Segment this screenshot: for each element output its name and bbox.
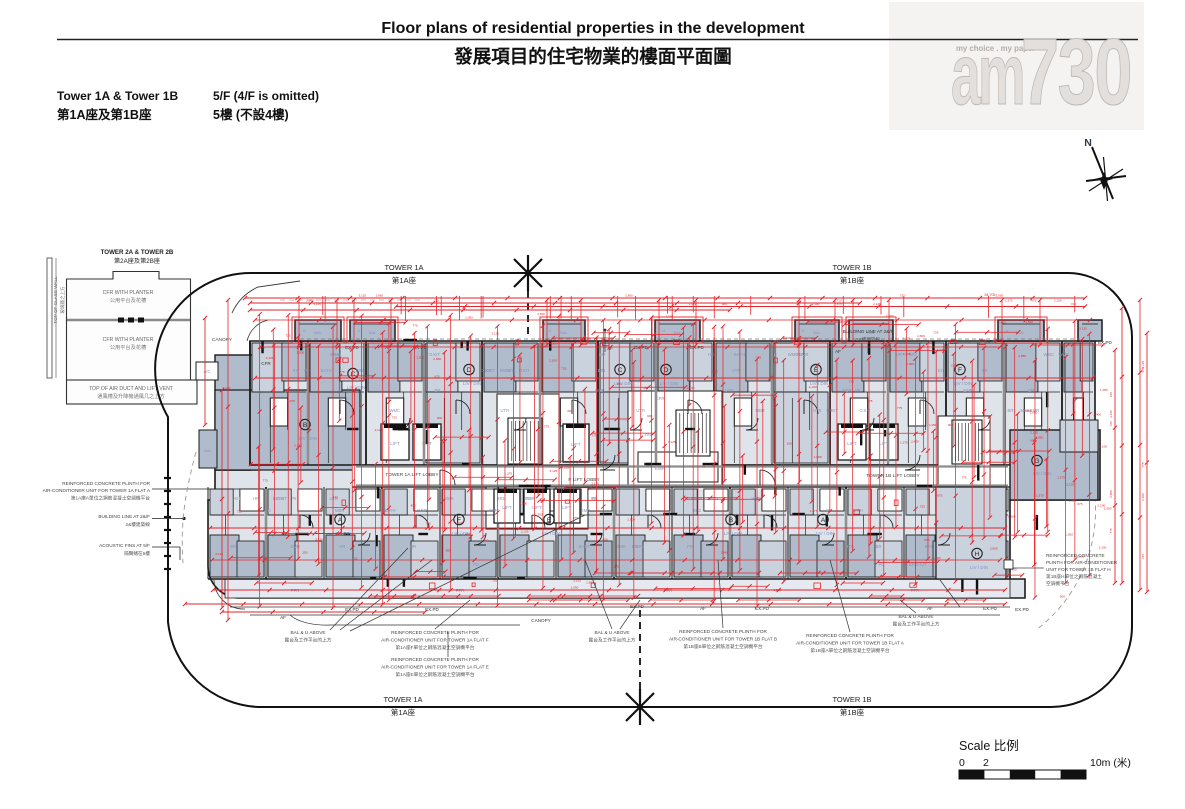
- svg-text:1,500: 1,500: [1025, 320, 1033, 324]
- svg-text:MBR: MBR: [842, 388, 851, 393]
- svg-text:BATH: BATH: [321, 368, 332, 373]
- svg-text:AF: AF: [986, 339, 992, 344]
- svg-text:第1A座E單位之鋼筋混凝土空調機平台: 第1A座E單位之鋼筋混凝土空調機平台: [395, 671, 474, 678]
- svg-text:675: 675: [837, 302, 842, 306]
- svg-text:725: 725: [920, 504, 925, 508]
- svg-text:PD: PD: [687, 544, 693, 549]
- svg-text:LIV / DIN: LIV / DIN: [347, 385, 365, 390]
- svg-text:TOWER 1B: TOWER 1B: [832, 695, 871, 704]
- svg-text:1,500: 1,500: [917, 334, 925, 338]
- svg-text:150: 150: [643, 386, 648, 390]
- svg-text:BATH: BATH: [579, 544, 590, 549]
- svg-text:BAL: BAL: [560, 330, 568, 335]
- svg-text:2,100: 2,100: [1054, 299, 1062, 303]
- svg-text:2,125: 2,125: [1030, 431, 1038, 435]
- svg-text:KIT: KIT: [234, 496, 241, 501]
- svg-text:2,100: 2,100: [549, 359, 557, 363]
- svg-text:O.KIT: O.KIT: [484, 368, 495, 373]
- svg-text:Scale 比例: Scale 比例: [959, 739, 1019, 753]
- svg-text:U: U: [357, 329, 360, 333]
- svg-text:BATH: BATH: [734, 352, 745, 357]
- svg-text:675: 675: [924, 538, 929, 542]
- svg-text:675: 675: [434, 374, 439, 378]
- svg-text:ACOUSTIC FINS AT 5/F: ACOUSTIC FINS AT 5/F: [99, 543, 150, 548]
- svg-text:1,500: 1,500: [627, 517, 635, 521]
- svg-text:3,125: 3,125: [668, 440, 676, 444]
- svg-text:3,125: 3,125: [1109, 410, 1113, 418]
- svg-text:BAL & U ABOVE: BAL & U ABOVE: [291, 630, 326, 635]
- svg-text:775: 775: [867, 399, 872, 403]
- svg-text:900: 900: [712, 370, 717, 374]
- svg-text:KIT: KIT: [831, 408, 838, 413]
- svg-text:第1A座: 第1A座: [392, 275, 417, 285]
- svg-text:2,100: 2,100: [687, 386, 695, 390]
- svg-text:900: 900: [722, 302, 727, 306]
- svg-text:LIV / DIN: LIV / DIN: [816, 531, 834, 536]
- svg-text:UNIT FOR TOWER 1B FLAT H: UNIT FOR TOWER 1B FLAT H: [1046, 567, 1111, 572]
- svg-text:1,500: 1,500: [481, 539, 489, 543]
- svg-text:1,050: 1,050: [1035, 435, 1043, 439]
- svg-text:3,125: 3,125: [573, 579, 581, 583]
- svg-text:2,660: 2,660: [625, 294, 633, 298]
- svg-text:KIT: KIT: [938, 368, 945, 373]
- svg-text:775: 775: [1141, 462, 1145, 467]
- svg-text:TOWER 2A & TOWER 2B: TOWER 2A & TOWER 2B: [101, 249, 174, 256]
- svg-text:2,660: 2,660: [376, 294, 384, 298]
- svg-text:2,125: 2,125: [1066, 483, 1074, 487]
- svg-text:LIV / DIN: LIV / DIN: [463, 381, 481, 386]
- svg-text:3,125: 3,125: [491, 332, 499, 336]
- svg-text:1,050: 1,050: [1030, 410, 1038, 414]
- svg-text:2,400: 2,400: [906, 362, 914, 366]
- svg-text:2,660: 2,660: [721, 550, 729, 554]
- svg-text:MBR: MBR: [335, 508, 344, 513]
- svg-text:725: 725: [392, 415, 397, 419]
- svg-text:REINFORCED CONCRETE PLINTH FOR: REINFORCED CONCRETE PLINTH FOR: [391, 630, 479, 635]
- svg-text:2,400: 2,400: [1093, 412, 1101, 416]
- svg-text:EMR: EMR: [581, 508, 590, 513]
- svg-text:1,050: 1,050: [689, 302, 697, 306]
- svg-text:LIFT: LIFT: [390, 441, 400, 446]
- svg-text:HR: HR: [708, 352, 714, 357]
- svg-text:露台及工作平台的上方: 露台及工作平台的上方: [285, 636, 332, 643]
- svg-text:BATH: BATH: [385, 508, 396, 513]
- svg-text:BUILDING LINE AT 2&/F: BUILDING LINE AT 2&/F: [98, 514, 150, 519]
- svg-text:1,500: 1,500: [296, 351, 304, 355]
- svg-text:UTR: UTR: [501, 408, 510, 413]
- svg-text:CANOPY: CANOPY: [531, 618, 550, 623]
- svg-text:EMR: EMR: [617, 544, 626, 549]
- svg-text:BR: BR: [230, 544, 236, 549]
- svg-text:725: 725: [561, 367, 566, 371]
- svg-text:900: 900: [948, 423, 953, 427]
- svg-text:1,050: 1,050: [1068, 499, 1076, 503]
- svg-text:2,125: 2,125: [873, 302, 881, 306]
- svg-text:775: 775: [413, 324, 418, 328]
- svg-text:725: 725: [900, 294, 905, 298]
- svg-text:2&樓建築線: 2&樓建築線: [126, 521, 151, 528]
- svg-text:3,125: 3,125: [266, 356, 274, 360]
- svg-text:900: 900: [460, 340, 465, 344]
- svg-text:REINFORCED CONCRETE PLINTH FOR: REINFORCED CONCRETE PLINTH FOR: [391, 657, 479, 662]
- svg-text:TOP OF GLASS WALL: TOP OF GLASS WALL: [53, 276, 58, 324]
- svg-text:U: U: [303, 329, 306, 333]
- svg-text:3,125: 3,125: [313, 302, 321, 306]
- svg-text:EX.PD: EX.PD: [1098, 340, 1112, 345]
- svg-text:LIFT: LIFT: [502, 505, 512, 510]
- svg-text:1,375: 1,375: [937, 348, 945, 352]
- svg-text:BAL: BAL: [674, 330, 682, 335]
- svg-text:LIFT: LIFT: [562, 505, 572, 510]
- svg-text:PFR: PFR: [911, 588, 920, 593]
- svg-text:775: 775: [291, 497, 296, 501]
- svg-text:1,500: 1,500: [1104, 506, 1112, 510]
- svg-text:EMR: EMR: [444, 496, 453, 501]
- svg-text:LIV / DIN: LIV / DIN: [970, 565, 988, 570]
- svg-text:1,375: 1,375: [1036, 493, 1044, 497]
- svg-text:E: E: [547, 517, 552, 524]
- svg-text:2,125: 2,125: [903, 352, 911, 356]
- svg-text:5樓 (不設4樓): 5樓 (不設4樓): [213, 107, 289, 122]
- svg-text:900: 900: [647, 414, 652, 418]
- svg-text:BR: BR: [1028, 388, 1034, 393]
- svg-text:BR: BR: [434, 388, 440, 393]
- svg-text:150: 150: [787, 441, 792, 445]
- svg-text:725: 725: [849, 379, 854, 383]
- svg-text:2,850: 2,850: [951, 363, 959, 367]
- svg-text:775: 775: [339, 370, 344, 374]
- svg-text:公用平台及花槽: 公用平台及花槽: [110, 343, 146, 351]
- svg-text:775: 775: [263, 478, 268, 482]
- svg-text:O.KIT: O.KIT: [276, 496, 287, 501]
- svg-text:WMC: WMC: [1044, 352, 1054, 357]
- svg-text:1,375: 1,375: [810, 509, 818, 513]
- svg-text:725: 725: [425, 521, 430, 525]
- svg-text:900: 900: [567, 409, 572, 413]
- svg-text:150: 150: [617, 382, 622, 386]
- svg-text:UTR: UTR: [732, 368, 741, 373]
- svg-text:第1B座B單位之鋼筋混凝土空調機平台: 第1B座B單位之鋼筋混凝土空調機平台: [683, 643, 762, 650]
- svg-text:第1A座及第1B座: 第1A座及第1B座: [57, 107, 152, 122]
- svg-text:TOWER 1B LIFT LOBBY: TOWER 1B LIFT LOBBY: [866, 473, 920, 479]
- svg-text:1,500: 1,500: [519, 502, 527, 506]
- svg-text:775: 775: [591, 433, 596, 437]
- svg-text:HR: HR: [855, 388, 861, 393]
- svg-text:5/F (4/F is omitted): 5/F (4/F is omitted): [213, 89, 319, 103]
- svg-text:B: B: [303, 422, 307, 429]
- svg-text:REINFORCED CONCRETE PLINTH FOR: REINFORCED CONCRETE PLINTH FOR: [679, 629, 767, 634]
- svg-text:空調機平台: 空調機平台: [1046, 580, 1070, 587]
- svg-text:725: 725: [933, 330, 938, 334]
- svg-text:2,850: 2,850: [462, 533, 470, 537]
- svg-text:U: U: [662, 329, 665, 333]
- svg-text:775: 775: [1109, 528, 1113, 533]
- svg-text:BR2: BR2: [636, 544, 645, 549]
- svg-text:2,100: 2,100: [809, 385, 817, 389]
- svg-text:REINFORCED CONCRETE: REINFORCED CONCRETE: [1046, 553, 1105, 558]
- svg-text:U: U: [802, 329, 805, 333]
- svg-text:1,375: 1,375: [504, 471, 512, 475]
- svg-text:C: C: [618, 367, 623, 374]
- svg-text:露台及工作平台的上方: 露台及工作平台的上方: [893, 620, 940, 627]
- svg-text:10m (米): 10m (米): [1090, 756, 1131, 769]
- svg-text:第1A座: 第1A座: [391, 707, 416, 717]
- svg-text:U: U: [549, 329, 552, 333]
- svg-text:BR: BR: [876, 544, 882, 549]
- svg-text:775: 775: [897, 406, 902, 410]
- svg-text:AF: AF: [280, 615, 286, 620]
- svg-text:HR: HR: [896, 352, 902, 357]
- svg-text:1,500: 1,500: [455, 521, 463, 525]
- svg-text:1,375: 1,375: [611, 565, 619, 569]
- svg-text:BAL: BAL: [204, 448, 212, 453]
- svg-text:LIV / DIN: LIV / DIN: [660, 381, 678, 386]
- svg-text:900: 900: [411, 504, 416, 508]
- svg-text:隔聲鰭在5樓: 隔聲鰭在5樓: [124, 550, 150, 557]
- svg-text:N: N: [1084, 137, 1092, 149]
- svg-text:CANOPY: CANOPY: [212, 337, 233, 343]
- svg-text:HR: HR: [600, 352, 606, 357]
- svg-text:PD: PD: [473, 562, 479, 567]
- svg-text:1,050: 1,050: [773, 588, 781, 592]
- svg-text:1,050: 1,050: [1100, 388, 1108, 392]
- svg-text:AF: AF: [835, 349, 841, 354]
- svg-text:775: 775: [961, 476, 966, 480]
- svg-text:1,500: 1,500: [535, 512, 543, 516]
- svg-text:PFR: PFR: [456, 588, 465, 593]
- svg-text:2,125: 2,125: [294, 443, 302, 447]
- svg-text:1,375: 1,375: [1005, 299, 1013, 303]
- svg-text:第1A座A單位之鋼筋混凝土空調機平台: 第1A座A單位之鋼筋混凝土空調機平台: [71, 495, 150, 502]
- svg-text:675: 675: [1077, 502, 1082, 506]
- svg-text:BR2: BR2: [356, 368, 365, 373]
- svg-text:公用平台及花槽: 公用平台及花槽: [110, 296, 146, 304]
- svg-text:BAL: BAL: [314, 330, 322, 335]
- svg-text:EX.PD: EX.PD: [1015, 607, 1029, 612]
- svg-text:1,500: 1,500: [416, 355, 424, 359]
- svg-text:775: 775: [333, 496, 338, 500]
- svg-text:B: B: [729, 517, 733, 524]
- svg-text:0: 0: [959, 757, 965, 769]
- svg-text:LIFT: LIFT: [532, 505, 542, 510]
- svg-text:725: 725: [1071, 302, 1076, 306]
- svg-text:775: 775: [544, 425, 549, 429]
- svg-text:775: 775: [700, 465, 705, 469]
- svg-text:1,050: 1,050: [571, 586, 579, 590]
- svg-text:第1B座: 第1B座: [840, 275, 865, 285]
- svg-text:LIV / DIN: LIV / DIN: [724, 531, 742, 536]
- svg-text:BAL: BAL: [369, 330, 377, 335]
- svg-text:REINFORCED CONCRETE PLINTH FOR: REINFORCED CONCRETE PLINTH FOR: [62, 481, 150, 486]
- svg-text:第1B座: 第1B座: [840, 707, 865, 717]
- svg-text:725: 725: [285, 334, 290, 338]
- svg-text:AIR-CONDITIONER UNIT FOR TOWER: AIR-CONDITIONER UNIT FOR TOWER 1B FLAT A: [796, 640, 905, 645]
- svg-text:Tower 1A & Tower 1B: Tower 1A & Tower 1B: [57, 89, 178, 103]
- svg-text:第1B座H單位之鋼筋混凝土: 第1B座H單位之鋼筋混凝土: [1046, 573, 1102, 580]
- svg-text:2,660: 2,660: [886, 314, 894, 318]
- svg-text:EX.PD: EX.PD: [425, 607, 439, 612]
- svg-text:2,850: 2,850: [1109, 490, 1113, 498]
- svg-text:BR2: BR2: [925, 544, 934, 549]
- svg-text:725: 725: [492, 579, 497, 583]
- svg-text:UTR: UTR: [725, 388, 734, 393]
- svg-text:EX.PD: EX.PD: [345, 607, 359, 612]
- svg-text:900: 900: [437, 416, 442, 420]
- svg-text:EX.PD: EX.PD: [690, 345, 704, 350]
- svg-text:第1B座A單位之鋼筋混凝土空調機平台: 第1B座A單位之鋼筋混凝土空調機平台: [810, 647, 889, 654]
- svg-text:REINFORCED CONCRETE PLINTH FOR: REINFORCED CONCRETE PLINTH FOR: [806, 633, 894, 638]
- svg-text:1,050: 1,050: [814, 455, 822, 459]
- svg-text:2,125: 2,125: [375, 428, 383, 432]
- svg-text:E: E: [814, 367, 819, 374]
- svg-text:BR: BR: [982, 368, 988, 373]
- svg-text:1,500: 1,500: [1008, 514, 1016, 518]
- svg-text:2,660: 2,660: [933, 556, 941, 560]
- svg-text:O.KIT: O.KIT: [519, 368, 530, 373]
- svg-text:2: 2: [983, 757, 989, 769]
- svg-text:725: 725: [837, 299, 842, 303]
- svg-text:玻璃牆之上方: 玻璃牆之上方: [59, 286, 66, 314]
- svg-text:AIR-CONDITIONER UNIT FOR TOWER: AIR-CONDITIONER UNIT FOR TOWER 1A FLAT F: [381, 637, 489, 642]
- svg-text:Floor plans of residential pro: Floor plans of residential properties in…: [381, 20, 805, 37]
- svg-text:H: H: [975, 551, 980, 558]
- svg-text:HR: HR: [410, 544, 416, 549]
- svg-text:LIFT: LIFT: [571, 442, 581, 447]
- svg-text:1,050: 1,050: [1065, 532, 1073, 536]
- svg-text:2,400: 2,400: [223, 386, 231, 390]
- svg-text:BAL: BAL: [813, 330, 821, 335]
- svg-text:1,375: 1,375: [287, 399, 295, 403]
- svg-text:900: 900: [359, 378, 364, 382]
- svg-text:1,375: 1,375: [900, 441, 908, 445]
- svg-text:CFR: CFR: [261, 361, 271, 366]
- svg-text:675: 675: [937, 494, 942, 498]
- svg-text:LIV / DIN: LIV / DIN: [954, 381, 972, 386]
- svg-text:第1A座F單位之鋼筋混凝土空調機平台: 第1A座F單位之鋼筋混凝土空調機平台: [396, 644, 475, 651]
- svg-text:PFR: PFR: [291, 588, 300, 593]
- svg-text:發展項目的住宅物業的樓面平面圖: 發展項目的住宅物業的樓面平面圖: [453, 46, 732, 67]
- svg-text:LIV / DIN: LIV / DIN: [1033, 471, 1051, 476]
- svg-text:BUILDING LINE AT 2&/F: BUILDING LINE AT 2&/F: [843, 329, 894, 334]
- svg-text:AIR-CONDITIONER UNIT FOR TOWER: AIR-CONDITIONER UNIT FOR TOWER 1A FLAT E: [381, 664, 489, 669]
- svg-text:2,125: 2,125: [902, 336, 910, 340]
- svg-text:1,375: 1,375: [1057, 476, 1065, 480]
- svg-text:2,850: 2,850: [1018, 354, 1026, 358]
- svg-text:EX.PD: EX.PD: [630, 604, 644, 609]
- svg-text:775: 775: [756, 356, 761, 360]
- svg-text:725: 725: [352, 557, 357, 561]
- svg-text:900: 900: [348, 347, 353, 351]
- svg-text:am: am: [951, 27, 1023, 123]
- svg-text:BAL & U ABOVE: BAL & U ABOVE: [595, 630, 630, 635]
- svg-text:A: A: [338, 517, 343, 524]
- svg-text:F: F: [958, 367, 962, 374]
- svg-text:725: 725: [237, 509, 242, 513]
- svg-text:EMR: EMR: [500, 368, 509, 373]
- svg-text:BR1: BR1: [497, 496, 506, 501]
- svg-text:725: 725: [1141, 554, 1145, 559]
- svg-text:WMC: WMC: [390, 408, 400, 413]
- svg-text:900: 900: [602, 537, 607, 541]
- svg-text:BR1: BR1: [598, 368, 607, 373]
- svg-text:3,125: 3,125: [1079, 327, 1087, 331]
- svg-text:露台及工作平台的上方: 露台及工作平台的上方: [589, 636, 636, 643]
- svg-text:900: 900: [1060, 594, 1065, 598]
- svg-text:BR2: BR2: [693, 508, 702, 513]
- svg-text:2,125: 2,125: [315, 537, 323, 541]
- svg-text:675: 675: [1031, 299, 1036, 303]
- svg-text:PLINTH FOR AIR-CONDITIONER: PLINTH FOR AIR-CONDITIONER: [1046, 560, 1118, 565]
- svg-text:150: 150: [302, 551, 307, 555]
- svg-text:2,850: 2,850: [607, 485, 615, 489]
- svg-text:EMR: EMR: [964, 388, 973, 393]
- svg-text:EMR: EMR: [525, 496, 534, 501]
- svg-text:KIT: KIT: [293, 368, 300, 373]
- svg-text:HR: HR: [339, 544, 345, 549]
- svg-text:2,125: 2,125: [1141, 360, 1145, 368]
- svg-text:2,100: 2,100: [1099, 546, 1107, 550]
- svg-text:TOWER 1A: TOWER 1A: [384, 263, 423, 272]
- svg-text:AIR-CONDITIONER UNIT FOR TOWER: AIR-CONDITIONER UNIT FOR TOWER 1A FLAT A: [43, 488, 151, 493]
- svg-text:2&樓建築線: 2&樓建築線: [856, 336, 880, 343]
- svg-text:TOWER 1B: TOWER 1B: [832, 263, 871, 272]
- svg-text:AIR-CONDITIONER UNIT FOR TOWER: AIR-CONDITIONER UNIT FOR TOWER 1B FLAT B: [669, 636, 777, 641]
- svg-text:TOWER 1A: TOWER 1A: [383, 695, 422, 704]
- svg-text:3,125: 3,125: [359, 294, 367, 298]
- svg-text:2,100: 2,100: [1099, 445, 1107, 449]
- svg-text:150: 150: [1109, 392, 1113, 397]
- svg-text:1,500: 1,500: [537, 312, 545, 316]
- svg-text:WMC: WMC: [1058, 352, 1068, 357]
- svg-text:BAL & U ABOVE: BAL & U ABOVE: [899, 614, 934, 619]
- svg-text:2,850: 2,850: [433, 357, 441, 361]
- svg-text:LIFT: LIFT: [847, 441, 857, 446]
- svg-text:900: 900: [446, 549, 451, 553]
- svg-text:2,100: 2,100: [812, 302, 820, 306]
- svg-text:2,660: 2,660: [990, 546, 998, 550]
- svg-text:CFR WITH PLANTER: CFR WITH PLANTER: [103, 290, 154, 296]
- svg-text:54,705: 54,705: [985, 293, 996, 297]
- svg-text:LIV / DIN: LIV / DIN: [299, 436, 317, 441]
- svg-text:CFR WITH PLANTER: CFR WITH PLANTER: [103, 337, 154, 343]
- svg-text:1,050: 1,050: [996, 294, 1004, 298]
- svg-text:第2A座及第2B座: 第2A座及第2B座: [114, 257, 160, 265]
- svg-text:1,050: 1,050: [929, 423, 937, 427]
- svg-text:1,050: 1,050: [770, 339, 778, 343]
- svg-text:通風槽及升降機通風几之上方: 通風槽及升降機通風几之上方: [97, 392, 164, 400]
- svg-text:1,050: 1,050: [465, 316, 473, 320]
- svg-text:2,125: 2,125: [521, 529, 529, 533]
- svg-text:2,400: 2,400: [1141, 493, 1145, 501]
- svg-text:PD: PD: [265, 508, 271, 513]
- svg-text:2,125: 2,125: [215, 552, 223, 556]
- svg-text:A: A: [821, 517, 826, 524]
- svg-text:3,125: 3,125: [591, 481, 599, 485]
- svg-text:TOP OF AIR DUCT AND LIFT VENT: TOP OF AIR DUCT AND LIFT VENT: [89, 386, 174, 392]
- svg-text:WMC: WMC: [418, 508, 428, 513]
- svg-text:3,125: 3,125: [550, 469, 558, 473]
- svg-text:TOWER 1A LIFT LOBBY: TOWER 1A LIFT LOBBY: [385, 472, 439, 478]
- svg-text:HR: HR: [335, 352, 341, 357]
- svg-text:3,125: 3,125: [561, 466, 569, 470]
- svg-text:725: 725: [1109, 421, 1113, 426]
- svg-text:730: 730: [1021, 19, 1131, 124]
- svg-text:2,400: 2,400: [911, 439, 919, 443]
